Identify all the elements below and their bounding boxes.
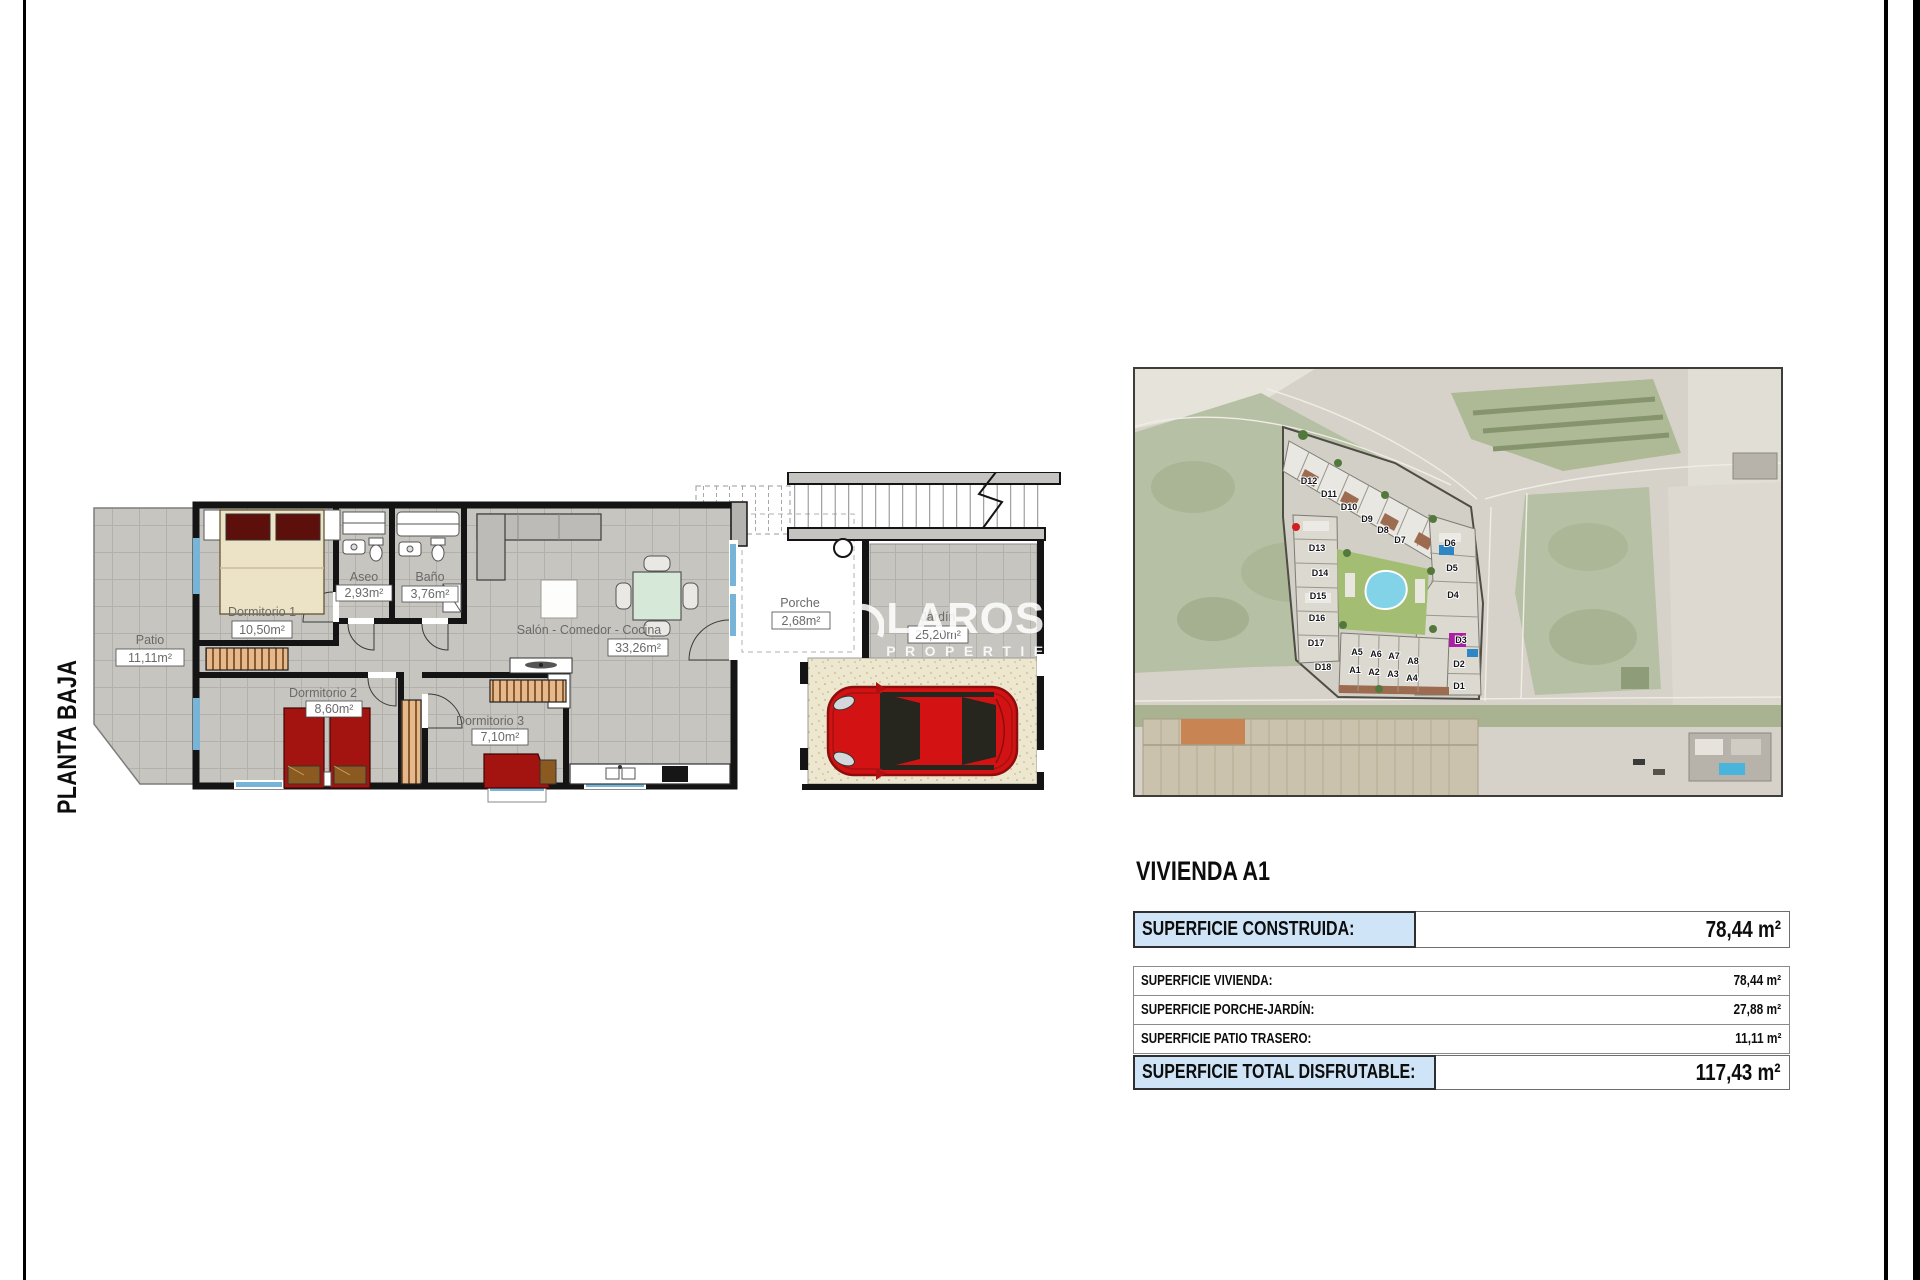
unit-label: A1	[1349, 665, 1361, 675]
unit-label: D3	[1455, 635, 1467, 645]
unit-label: A5	[1351, 647, 1363, 657]
floor-level-label: PLANTA BAJA	[52, 621, 83, 814]
unit-label: D18	[1315, 662, 1332, 672]
room-area: 7,10m²	[481, 730, 520, 744]
tv-unit	[510, 658, 572, 673]
room-area: 3,76m²	[411, 587, 450, 601]
surface-breakdown-table: SUPERFICIE VIVIENDA: 78,44 m² SUPERFICIE…	[1133, 966, 1790, 1054]
unit-label: A2	[1368, 667, 1380, 677]
unit-label: A8	[1407, 656, 1419, 666]
page-border-right-outer	[1913, 0, 1920, 1280]
existing-buildings	[1143, 719, 1478, 797]
room-name: Aseo	[350, 570, 379, 584]
unit-label: D10	[1341, 502, 1358, 512]
site-map: D12 D11 D10 D9 D8 D7 D13 D14 D15 D16 D17…	[1133, 367, 1783, 797]
double-bed	[204, 510, 340, 614]
brochure-page: { "page": { "orientation_label": "PLANTA…	[0, 0, 1920, 1280]
rug	[541, 580, 577, 618]
room-area: 2,68m²	[782, 614, 821, 628]
unit-label: A7	[1388, 651, 1400, 661]
row-value: 11,11 m²	[1735, 1031, 1781, 1047]
unit-label: D9	[1361, 514, 1373, 524]
row-value: 27,88 m²	[1733, 1002, 1781, 1018]
wardrobe	[206, 648, 288, 670]
room-area: 10,50m²	[239, 623, 285, 637]
room-name: Baño	[415, 570, 444, 584]
room-area: 11,11m²	[128, 651, 172, 665]
table-row: SUPERFICIE PATIO TRASERO: 11,11 m²	[1133, 1024, 1790, 1054]
room-name: Jardín	[921, 610, 956, 624]
unit-label: D12	[1301, 476, 1318, 486]
stair-post	[834, 539, 852, 557]
room-name: Porche	[780, 596, 820, 610]
unit-label: D11	[1321, 489, 1337, 499]
unit-label: D17	[1308, 638, 1325, 648]
room-area: 2,93m²	[345, 586, 384, 600]
total-surface-value: 117,43 m²	[1677, 1056, 1781, 1089]
unit-label: A3	[1387, 669, 1399, 679]
table-row: SUPERFICIE PORCHE-JARDÍN: 27,88 m²	[1133, 995, 1790, 1025]
wardrobe	[401, 700, 421, 784]
room-area: 25,20m²	[915, 628, 961, 642]
unit-label: D8	[1377, 525, 1389, 535]
red-marker	[1292, 523, 1300, 531]
table-row: SUPERFICIE VIVIENDA: 78,44 m²	[1133, 966, 1790, 996]
corner-pillar	[731, 502, 747, 546]
page-border-right-inner	[1884, 0, 1888, 1280]
unit-label: D15	[1310, 591, 1327, 601]
unit-label: D6	[1444, 538, 1456, 548]
car-top-view	[828, 682, 1017, 780]
built-surface-row: SUPERFICIE CONSTRUIDA: 78,44 m²	[1133, 911, 1790, 948]
unit-label: D7	[1394, 535, 1406, 545]
row-label: SUPERFICIE PATIO TRASERO:	[1141, 1031, 1311, 1047]
row-label: SUPERFICIE PORCHE-JARDÍN:	[1141, 1002, 1314, 1018]
watermark-square-icon	[1083, 603, 1096, 616]
row-label: SUPERFICIE VIVIENDA:	[1141, 973, 1272, 989]
unit-label: D1	[1453, 681, 1465, 691]
room-name: Dormitorio 2	[289, 686, 357, 700]
row-value: 78,44 m²	[1733, 973, 1781, 989]
total-surface-label: SUPERFICIE TOTAL DISFRUTABLE:	[1133, 1055, 1436, 1090]
unit-label: D16	[1309, 613, 1326, 623]
page-border-left	[23, 0, 26, 1280]
wardrobe	[490, 680, 566, 702]
room-area: 33,26m²	[615, 641, 661, 655]
room-name: Salón - Comedor - Cocina	[517, 623, 662, 637]
unit-label: D13	[1309, 543, 1326, 553]
unit-title: VIVIENDA A1	[1136, 856, 1304, 887]
mini-pool	[1467, 649, 1478, 657]
unit-label: D2	[1453, 659, 1465, 669]
floor-plan: Patio 11,11m² Dormitorio 1 10,50m² Aseo …	[86, 472, 1066, 812]
unit-label: D14	[1312, 568, 1329, 578]
room-name: Dormitorio 3	[456, 714, 524, 728]
room-area: 8,60m²	[315, 702, 354, 716]
built-surface-label: SUPERFICIE CONSTRUIDA:	[1133, 911, 1416, 948]
unit-label: D4	[1447, 590, 1459, 600]
total-surface-row: SUPERFICIE TOTAL DISFRUTABLE: 117,43 m²	[1133, 1055, 1790, 1090]
unit-label: D5	[1446, 563, 1458, 573]
room-name: Patio	[136, 633, 165, 647]
room-name: Dormitorio 1	[228, 605, 296, 619]
built-surface-value: 78,44 m²	[1689, 912, 1781, 947]
pool	[1366, 571, 1407, 609]
unit-label: A4	[1406, 673, 1418, 683]
unit-label: A6	[1370, 649, 1382, 659]
